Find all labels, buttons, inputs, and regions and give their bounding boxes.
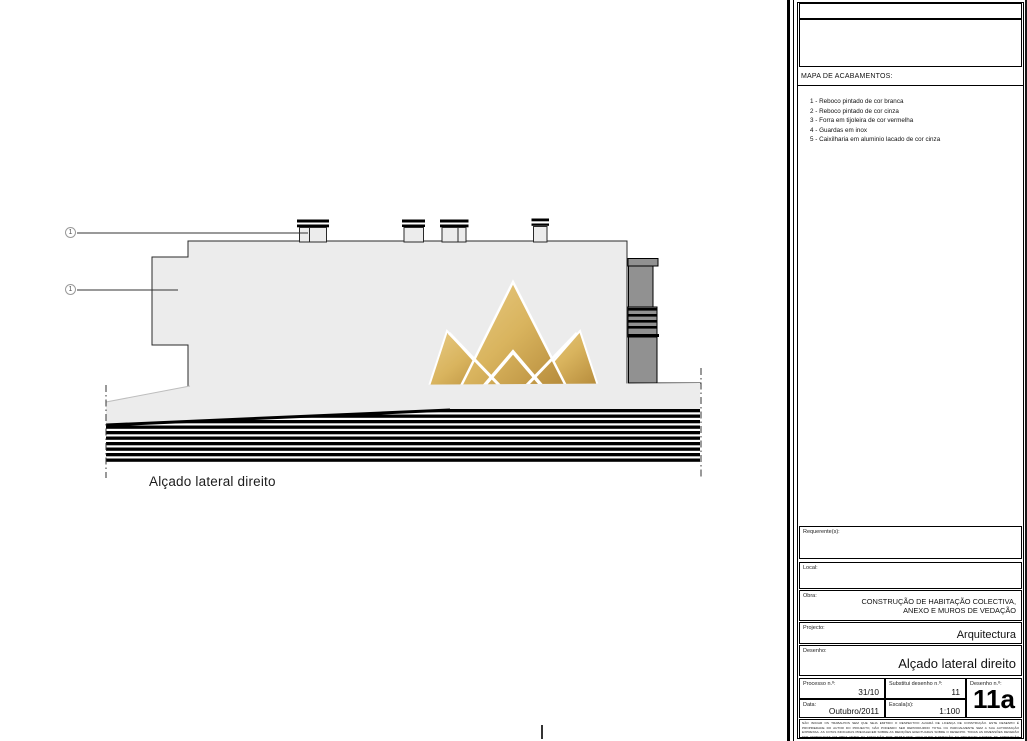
desenho-numero-cell: Desenho n.º: 11a: [966, 678, 1022, 718]
projecto-value: Arquitectura: [957, 629, 1016, 641]
escala-cell: Escala(s): 1:100: [885, 699, 966, 718]
callout-bubble-1: 1: [65, 227, 76, 238]
header-strip-box: [799, 3, 1022, 19]
elevation-drawing: ROYAL HOUSE BEYOND REAL ESTATE: [0, 0, 790, 741]
chimney-4: [532, 219, 550, 243]
header-logo-box: [799, 19, 1022, 67]
title-block: MAPA DE ACABAMENTOS: 1 - Reboco pintado …: [797, 2, 1024, 739]
panel-divider-thin: [793, 0, 794, 741]
finishes-list: 1 - Reboco pintado de cor branca 2 - Reb…: [810, 97, 940, 145]
chimney-3: [440, 220, 469, 243]
callout-bubble-2: 1: [65, 284, 76, 295]
substitui-value: 11: [951, 687, 960, 697]
ventilation-tower: [628, 259, 659, 384]
mapa-title: MAPA DE ACABAMENTOS:: [801, 73, 893, 80]
desenho-numero-value: 11a: [967, 684, 1021, 715]
chimney-2: [402, 220, 425, 243]
obra-label: Obra:: [803, 593, 817, 599]
data-label: Data:: [803, 702, 816, 708]
obra-value-line1: CONSTRUÇÃO DE HABITAÇÃO COLECTIVA,: [861, 597, 1016, 606]
finish-item: 2 - Reboco pintado de cor cinza: [810, 107, 940, 117]
obra-value: CONSTRUÇÃO DE HABITAÇÃO COLECTIVA, ANEXO…: [861, 597, 1016, 615]
desenho-box: Desenho: Alçado lateral direito: [799, 645, 1022, 676]
processo-label: Processo n.º:: [803, 681, 836, 687]
projecto-label: Projecto:: [803, 625, 825, 631]
finish-item: 5 - Caixilharia em aluminio lacado de co…: [810, 135, 940, 145]
substitui-cell: Substitui desenho n.º: 11: [885, 678, 966, 699]
data-cell: Data: Outubro/2011: [799, 699, 885, 718]
projecto-box: Projecto: Arquitectura: [799, 622, 1022, 644]
substitui-label: Substitui desenho n.º:: [889, 681, 942, 687]
requerente-label: Requerente(s):: [803, 529, 840, 535]
drawing-caption: Alçado lateral direito: [149, 474, 276, 489]
obra-value-line2: ANEXO E MUROS DE VEDAÇÃO: [861, 606, 1016, 615]
fine-print: NÃO INICIAR OS TRABALHOS SEM QUE SEJA EM…: [799, 719, 1022, 738]
local-box: Local:: [799, 562, 1022, 589]
escala-label: Escala(s):: [889, 702, 913, 708]
escala-value: 1:100: [939, 706, 960, 716]
processo-value: 31/10: [858, 687, 879, 697]
mapa-band: MAPA DE ACABAMENTOS:: [798, 67, 1023, 86]
processo-cell: Processo n.º: 31/10: [799, 678, 885, 699]
chimney-1: [297, 220, 329, 243]
desenho-value: Alçado lateral direito: [898, 656, 1016, 671]
panel-divider-thick: [787, 0, 790, 741]
drawing-sheet: ROYAL HOUSE BEYOND REAL ESTATE 1 1 Alçad…: [0, 0, 1027, 741]
desenho-label: Desenho:: [803, 648, 827, 654]
data-value: Outubro/2011: [829, 706, 879, 716]
local-label: Local:: [803, 565, 818, 571]
finish-item: 3 - Forra em tijoleira de cor vermelha: [810, 116, 940, 126]
finish-item: 1 - Reboco pintado de cor branca: [810, 97, 940, 107]
requerente-box: Requerente(s):: [799, 526, 1022, 559]
finish-item: 4 - Guardas em inox: [810, 126, 940, 136]
obra-box: Obra: CONSTRUÇÃO DE HABITAÇÃO COLECTIVA,…: [799, 590, 1022, 621]
